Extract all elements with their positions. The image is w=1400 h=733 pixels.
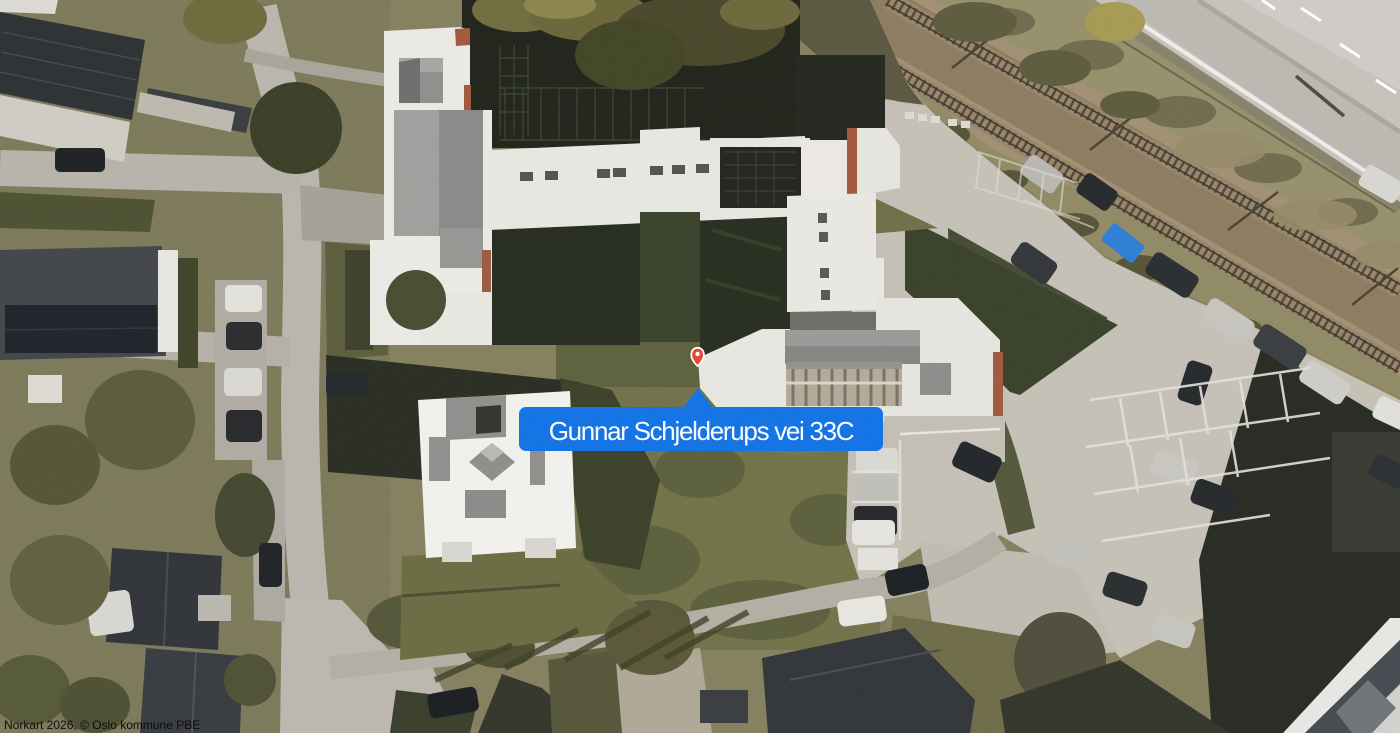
svg-text:Norkart 2026, © Oslo kommune P: Norkart 2026, © Oslo kommune PBE — [4, 718, 200, 732]
